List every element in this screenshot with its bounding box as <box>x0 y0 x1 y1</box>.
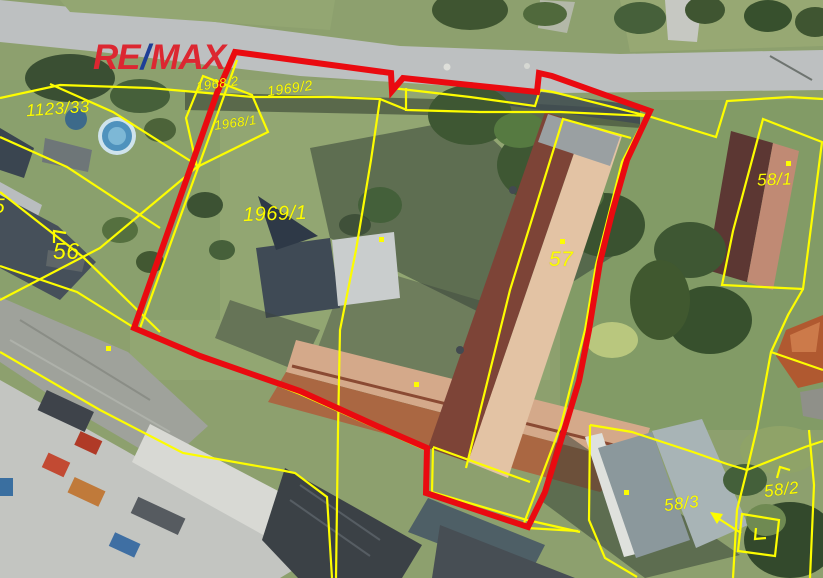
parcel-label-58-2: 58/2 <box>763 479 800 500</box>
highlighted-property-boundary <box>134 52 650 527</box>
boundary-point-dots <box>106 161 791 495</box>
remax-logo-max: MAX <box>150 38 225 77</box>
aerial-cadastral-map: 1123/33 1968/2 1969/2 1968/1 1969/1 56 5… <box>0 0 823 578</box>
parcel-label-5: 5 <box>0 196 5 217</box>
parcel-label-1969-1: 1969/1 <box>243 203 308 225</box>
corner-markers <box>54 231 790 539</box>
remax-logo: RE/MAX <box>93 40 225 75</box>
parcel-label-58-1: 58/1 <box>757 170 793 188</box>
parcel-boundary-lines <box>0 60 823 578</box>
parcel-label-56: 56 <box>53 240 80 263</box>
remax-logo-re: RE <box>93 38 140 77</box>
cadastral-lines-layer <box>0 0 823 578</box>
parcel-label-58-3: 58/3 <box>663 493 700 514</box>
parcel-label-1123-33: 1123/33 <box>25 98 90 119</box>
parcel-label-57: 57 <box>549 249 573 270</box>
remax-logo-slash: / <box>140 38 151 77</box>
